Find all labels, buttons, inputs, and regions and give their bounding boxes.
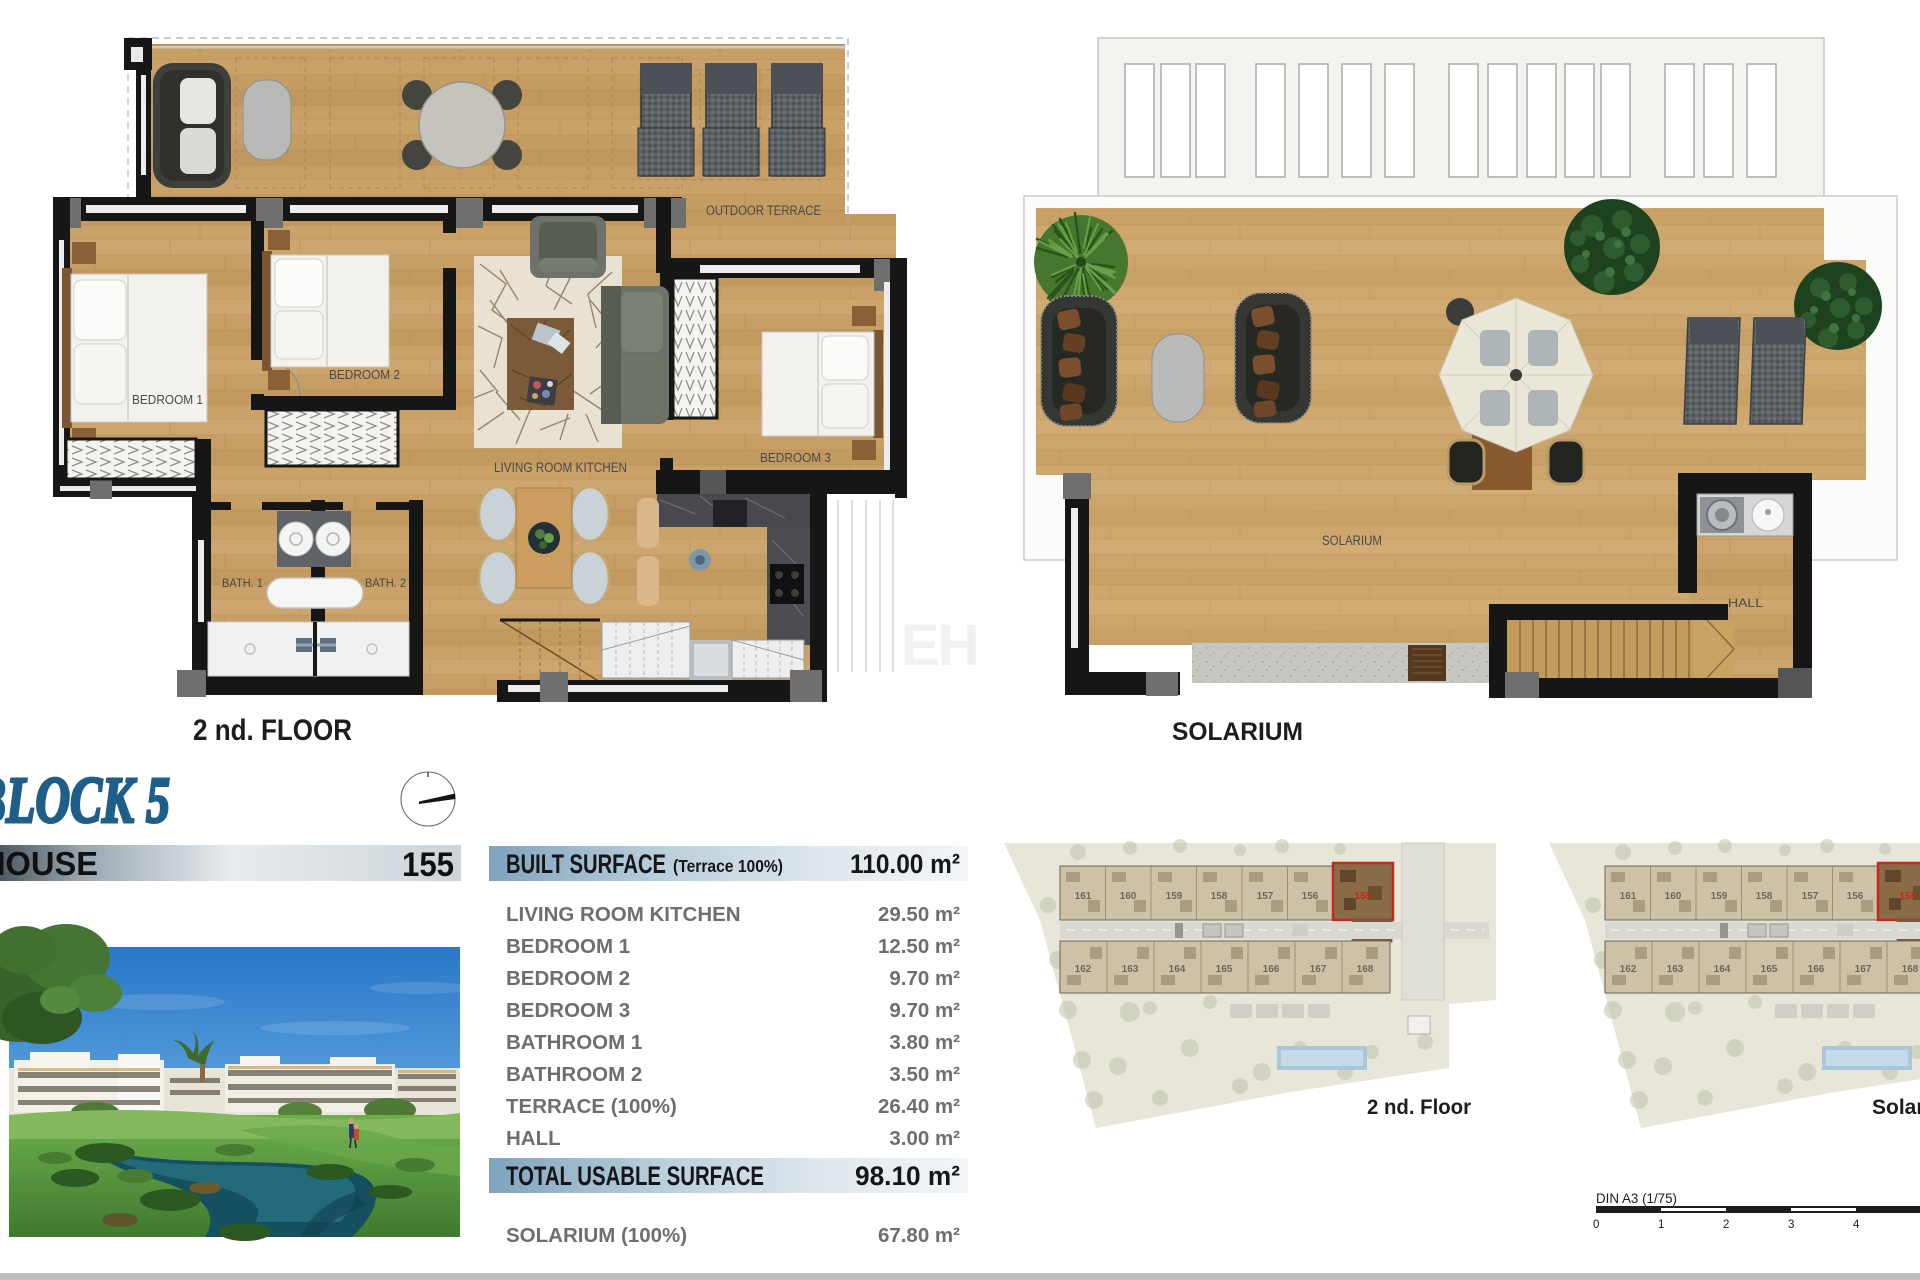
svg-text:1: 1 [1658, 1219, 1664, 1231]
svg-text:2: 2 [1723, 1219, 1729, 1231]
svg-text:167: 167 [1310, 964, 1327, 975]
svg-text:Solarium: Solarium [1872, 1096, 1920, 1119]
svg-text:SOLARIUM: SOLARIUM [1172, 718, 1303, 746]
svg-text:166: 166 [1263, 964, 1280, 975]
svg-text:164: 164 [1169, 964, 1186, 975]
svg-text:BATH. 2: BATH. 2 [365, 578, 406, 590]
svg-text:HALL: HALL [506, 1127, 561, 1150]
svg-text:BUILT SURFACE: BUILT SURFACE [506, 849, 666, 879]
svg-text:2 nd. FLOOR: 2 nd. FLOOR [193, 714, 352, 747]
svg-text:165: 165 [1216, 964, 1233, 975]
svg-text:159: 159 [1166, 891, 1183, 902]
svg-text:162: 162 [1075, 964, 1092, 975]
svg-text:LIVING ROOM KITCHEN: LIVING ROOM KITCHEN [494, 460, 627, 475]
svg-text:110.00 m²: 110.00 m² [850, 849, 960, 879]
svg-text:BEDROOM 3: BEDROOM 3 [760, 450, 831, 465]
svg-text:4: 4 [1853, 1219, 1860, 1231]
svg-text:161: 161 [1075, 891, 1092, 902]
svg-text:157: 157 [1257, 891, 1274, 902]
svg-text:BEDROOM 2: BEDROOM 2 [506, 967, 630, 990]
svg-text:98.10 m²: 98.10 m² [855, 1161, 960, 1191]
svg-text:168: 168 [1357, 964, 1374, 975]
svg-text:26.40 m²: 26.40 m² [878, 1095, 960, 1118]
svg-text:OUTDOOR TERRACE: OUTDOOR TERRACE [706, 203, 821, 218]
svg-text:29.50 m²: 29.50 m² [878, 903, 960, 926]
svg-text:BATHROOM 2: BATHROOM 2 [506, 1063, 642, 1086]
svg-text:SOLARIUM (100%): SOLARIUM (100%) [506, 1224, 687, 1247]
svg-text:DIN A3 (1/75): DIN A3 (1/75) [1596, 1191, 1677, 1206]
svg-text:SOLARIUM: SOLARIUM [1322, 532, 1382, 548]
svg-text:9.70 m²: 9.70 m² [889, 967, 960, 990]
svg-text:BEDROOM 1: BEDROOM 1 [132, 392, 203, 407]
svg-text:BATH. 1: BATH. 1 [222, 578, 263, 590]
svg-text:155: 155 [402, 846, 454, 884]
svg-text:BEDROOM 3: BEDROOM 3 [506, 999, 630, 1022]
svg-text:3: 3 [1788, 1219, 1794, 1231]
svg-text:9.70 m²: 9.70 m² [889, 999, 960, 1022]
svg-text:0: 0 [1593, 1219, 1599, 1231]
svg-text:TERRACE (100%): TERRACE (100%) [506, 1095, 677, 1118]
svg-text:(Terrace 100%): (Terrace 100%) [673, 856, 783, 876]
svg-text:HALL: HALL [1728, 596, 1763, 610]
svg-text:LIVING ROOM KITCHEN: LIVING ROOM KITCHEN [506, 903, 741, 926]
svg-text:BEDROOM 1: BEDROOM 1 [506, 935, 630, 958]
svg-text:163: 163 [1122, 964, 1139, 975]
svg-text:EH: EH [901, 613, 978, 678]
svg-text:155: 155 [1354, 890, 1372, 902]
svg-text:156: 156 [1302, 891, 1319, 902]
svg-text:3.80 m²: 3.80 m² [889, 1031, 960, 1054]
svg-text:BEDROOM 2: BEDROOM 2 [329, 367, 400, 382]
svg-text:BLOCK 5: BLOCK 5 [0, 764, 170, 837]
svg-text:67.80 m²: 67.80 m² [878, 1224, 960, 1247]
svg-text:3.50 m²: 3.50 m² [889, 1063, 960, 1086]
svg-text:160: 160 [1120, 891, 1137, 902]
svg-text:2 nd. Floor: 2 nd. Floor [1367, 1096, 1471, 1119]
svg-text:3.00 m²: 3.00 m² [889, 1127, 960, 1150]
svg-text:BATHROOM 1: BATHROOM 1 [506, 1031, 642, 1054]
svg-text:158: 158 [1211, 891, 1228, 902]
svg-text:HOUSE: HOUSE [0, 845, 98, 882]
svg-text:TOTAL USABLE SURFACE: TOTAL USABLE SURFACE [506, 1161, 764, 1191]
svg-text:12.50 m²: 12.50 m² [878, 935, 960, 958]
